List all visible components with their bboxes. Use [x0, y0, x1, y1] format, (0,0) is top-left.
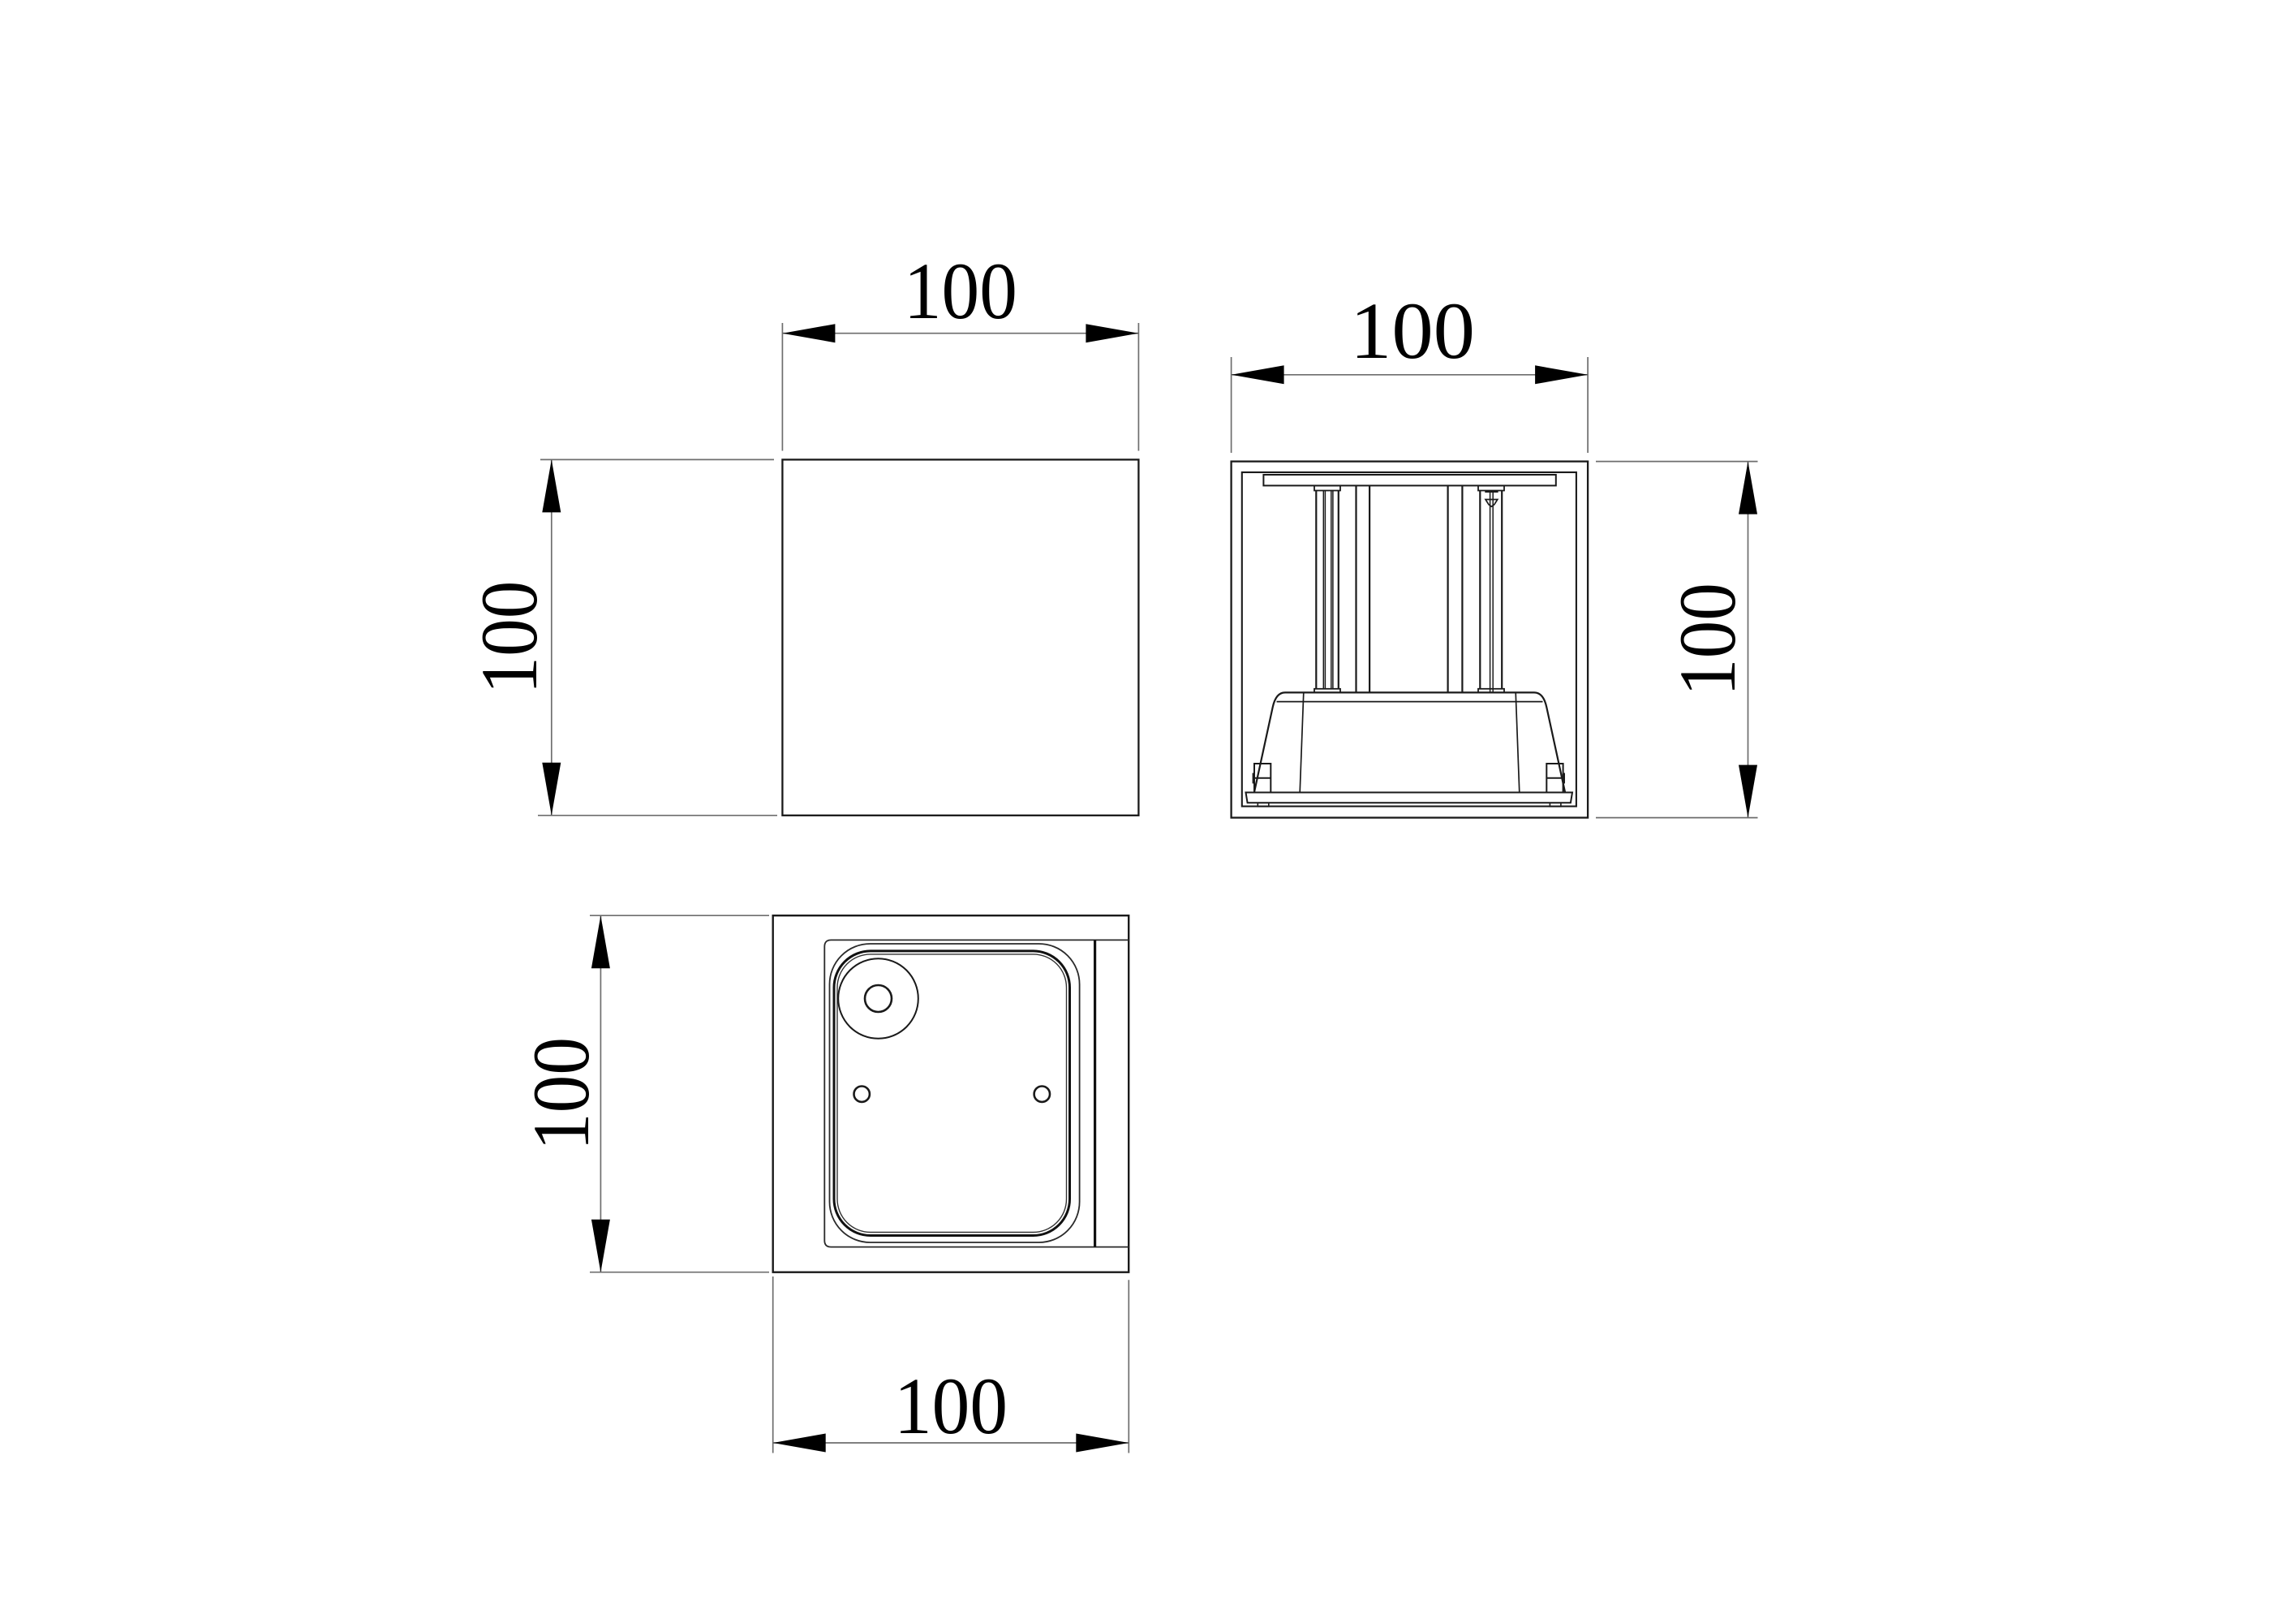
svg-text:100: 100 — [1350, 286, 1475, 376]
svg-text:100: 100 — [1662, 583, 1752, 696]
svg-text:100: 100 — [516, 1037, 606, 1151]
svg-text:100: 100 — [894, 1361, 1008, 1451]
svg-text:100: 100 — [464, 581, 554, 695]
svg-text:100: 100 — [904, 246, 1017, 336]
